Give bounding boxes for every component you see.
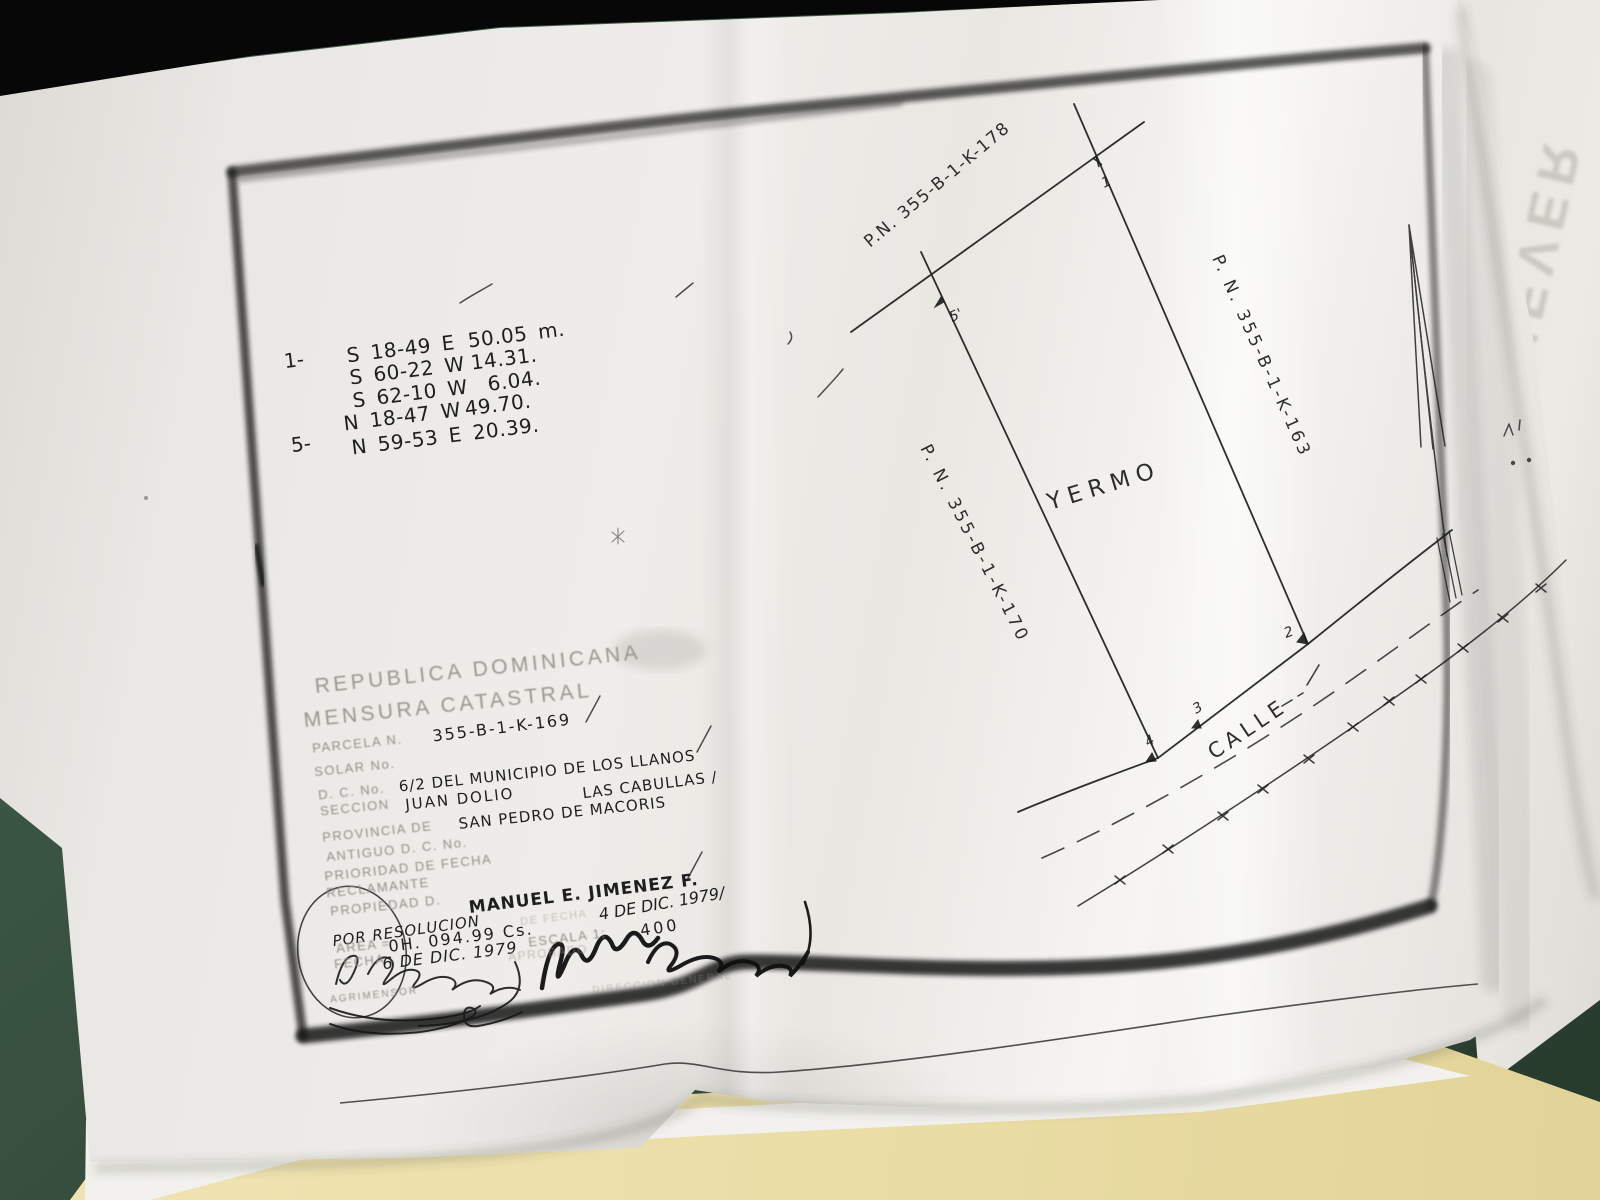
bearing-end-index: 5- [290, 431, 313, 457]
survey-document-paper [0, 0, 1600, 1200]
desk-surface: NEVER [0, 0, 1600, 1200]
bearing-start-index: 1- [283, 347, 306, 373]
